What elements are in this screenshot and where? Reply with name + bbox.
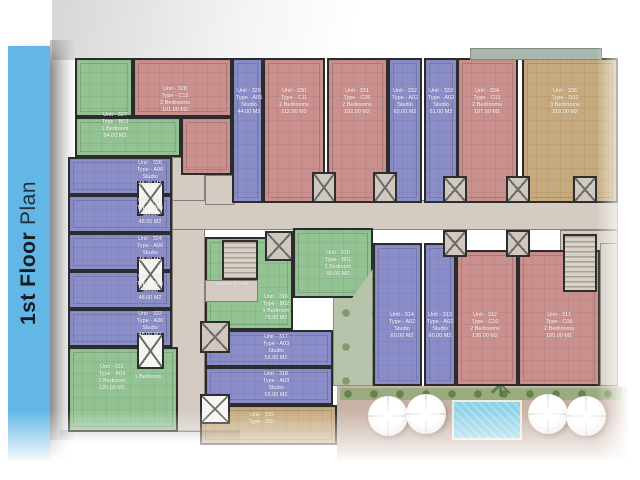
unit-324-label: Unit - 324Type - A06Studio48.00 M2 (127, 236, 173, 265)
unit-312-label: Unit - 312Type - C102 Bedrooms136.00 M2 (462, 312, 508, 341)
unit-333-label: Unit - 333Type - A02Studio61.00 M2 (424, 88, 458, 117)
unit-318-label: Unit - 318Type - A03Studio55.00 M2 (253, 371, 299, 400)
stairs (222, 240, 258, 280)
unit-327-label: Unit - 327Type - B031 Bedroom94.00 M2 (92, 112, 138, 141)
right-fade (596, 0, 640, 480)
unit-317-label: Unit - 317Type - A03Studio55.00 M2 (253, 334, 299, 363)
floor-plan: ✳ Unit - 327Type - B031 Bedroom94.00 (0, 0, 640, 480)
stairs (563, 234, 597, 292)
unit-325-label: Unit - 325Type - A06Studio48.00 M2 (127, 198, 173, 227)
unit-329-label: Unit - 329Type - A05Studio44.00 M2 (232, 88, 266, 117)
elevator-core (312, 172, 336, 203)
elevator-core (506, 176, 530, 203)
unit-323-label: Unit - 323Type - A06Studio48.00 M2 (127, 274, 173, 303)
elevator-core (373, 172, 397, 203)
unit-314-label: Unit - 314Type - A02Studio60.00 M2 (379, 312, 425, 341)
corridor-main (172, 200, 618, 230)
unit-328-label: Unit - 328Type - C122 Bedrooms101.00 M2 (152, 86, 198, 115)
unit-322-label: Unit - 322Type - A06Studio48.00 M2 (127, 311, 173, 340)
unit-313-label: Unit - 313Type - A02Studio60.00 M2 (422, 312, 458, 341)
unit-330-label: Unit - 330Type - C112 Bedrooms112.00 M2 (271, 88, 317, 117)
corridor-stub (205, 175, 235, 205)
elevator-core (265, 231, 293, 261)
unit-316-label: Unit - 316Type - B021 Bedroom78.00 M2 (253, 294, 299, 323)
balcony-band (470, 48, 602, 60)
unit-329-area (232, 58, 263, 203)
unit-321-extra-label: 1 Bedroom (125, 374, 171, 381)
elevator-core (200, 321, 230, 353)
unit-327-area (75, 58, 133, 117)
elevator-core (443, 176, 467, 203)
bottom-fade (0, 410, 640, 480)
unit-326-label: Unit - 326Type - A06Studio48.00 M2 (127, 160, 173, 189)
elevator-core (573, 176, 597, 203)
unit-332-label: Unit - 332Type - A02Studio60.00 M2 (388, 88, 422, 117)
unit-311-label: Unit - 311Type - C092 Bedrooms105.00 M2 (536, 312, 582, 341)
unit-331-label: Unit - 331Type - C052 Bedrooms102.00 M2 (334, 88, 380, 117)
unit-315-label: Unit - 315Type - B011 Bedroom66.00 M2 (315, 250, 361, 279)
unit-336-label: Unit - 336Type - D023 Bedrooms218.00 M2 (542, 88, 588, 117)
service-room-label: Service Room (208, 281, 254, 288)
elevator-core (443, 230, 467, 257)
unit-334-label: Unit - 334Type - C032 Bedrooms107.00 M2 (464, 88, 510, 117)
elevator-core (506, 230, 530, 257)
unit-328-area (181, 117, 232, 175)
